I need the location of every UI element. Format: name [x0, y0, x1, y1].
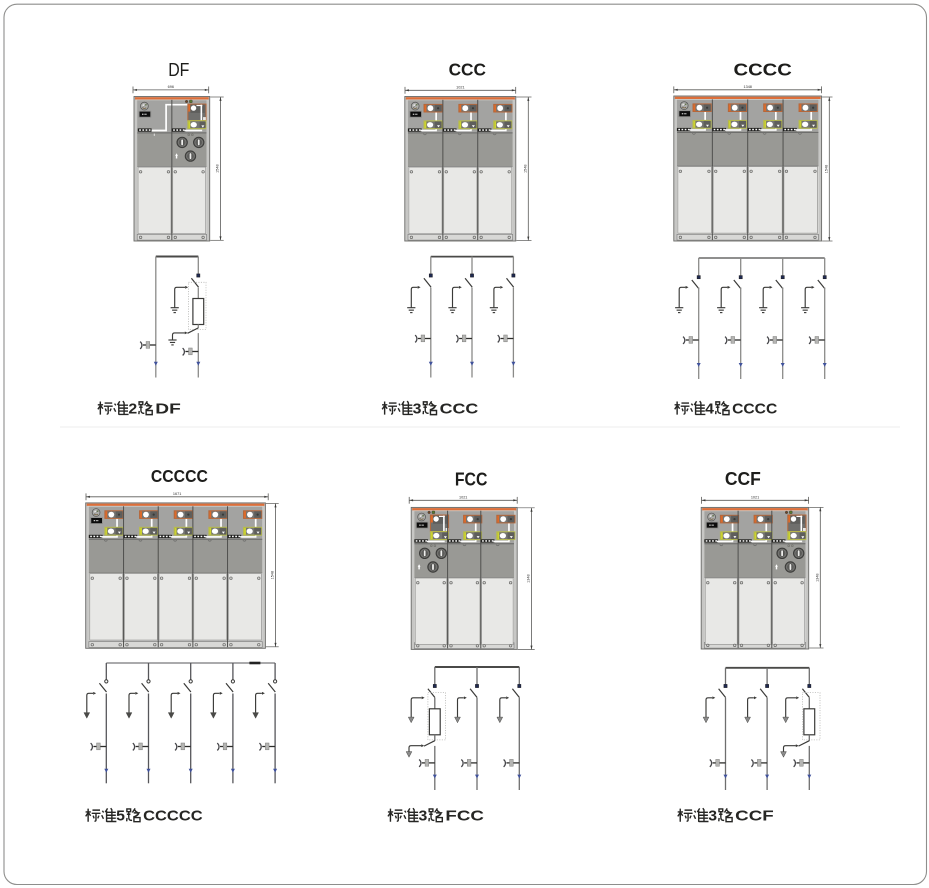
svg-text:696: 696: [168, 85, 174, 89]
svg-text:3: 3: [413, 400, 422, 417]
svg-text:1348: 1348: [743, 85, 751, 89]
svg-text:CCC: CCC: [440, 400, 479, 417]
svg-text:3: 3: [419, 807, 428, 824]
svg-text:1021: 1021: [459, 496, 467, 500]
svg-text:1548: 1548: [216, 164, 220, 172]
svg-text:1348: 1348: [527, 574, 531, 582]
svg-text:CCCC: CCCC: [734, 60, 793, 80]
svg-text:1548: 1548: [524, 165, 528, 173]
svg-text:1671: 1671: [173, 492, 181, 496]
svg-text:CCCC: CCCC: [732, 400, 777, 417]
svg-text:FCC: FCC: [455, 469, 488, 490]
svg-text:DF: DF: [155, 400, 181, 417]
svg-text:1348: 1348: [816, 573, 820, 581]
svg-text:1548: 1548: [825, 165, 829, 173]
svg-text:CCCCC: CCCCC: [143, 807, 203, 824]
svg-text:CCCCC: CCCCC: [151, 466, 208, 486]
svg-text:FCC: FCC: [445, 807, 484, 824]
svg-text:1021: 1021: [751, 496, 759, 500]
svg-text:CCF: CCF: [735, 807, 774, 824]
svg-text:1548: 1548: [271, 571, 275, 579]
svg-text:1021: 1021: [456, 86, 464, 90]
svg-text:CCF: CCF: [725, 469, 761, 489]
svg-text:CCC: CCC: [449, 59, 487, 79]
svg-text:2: 2: [128, 400, 137, 417]
svg-text:4: 4: [705, 400, 714, 417]
svg-text:DF: DF: [168, 60, 189, 80]
svg-text:5: 5: [116, 807, 125, 824]
svg-text:3: 3: [708, 807, 717, 824]
